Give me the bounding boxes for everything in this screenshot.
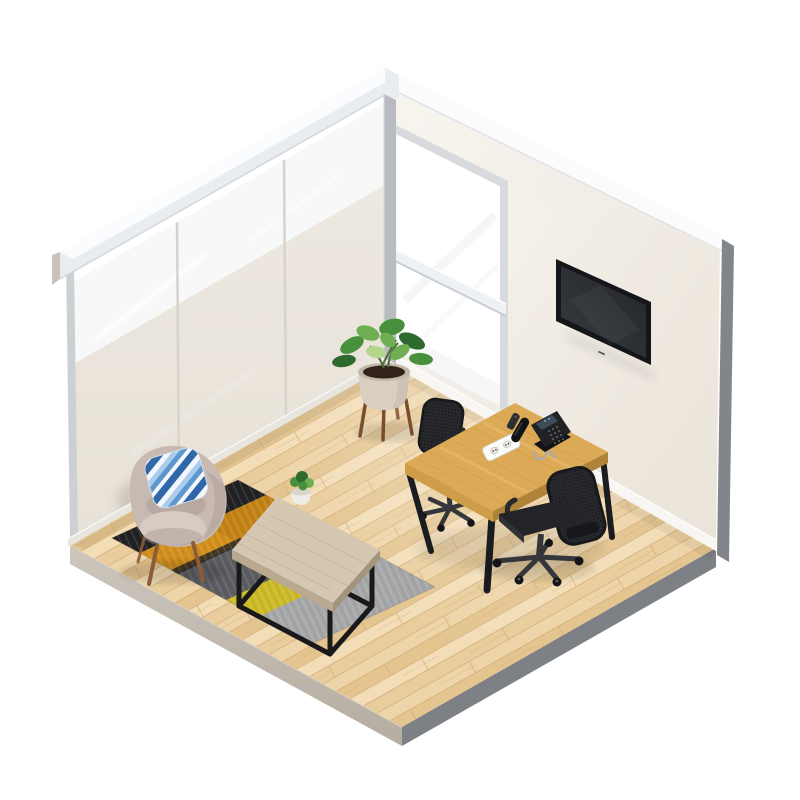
desk-leg-front (487, 516, 492, 590)
phone-screen-glint (548, 418, 550, 420)
beam-end-cap (52, 252, 60, 285)
table-plant-leaf (299, 482, 308, 491)
armchair-floor-shadow (120, 560, 224, 584)
right-wall-side-edge (717, 239, 734, 562)
room-render (0, 0, 800, 800)
phone-screen-glint (544, 420, 546, 422)
beam-corner-cap (385, 68, 399, 99)
window-frame-right (500, 182, 508, 414)
